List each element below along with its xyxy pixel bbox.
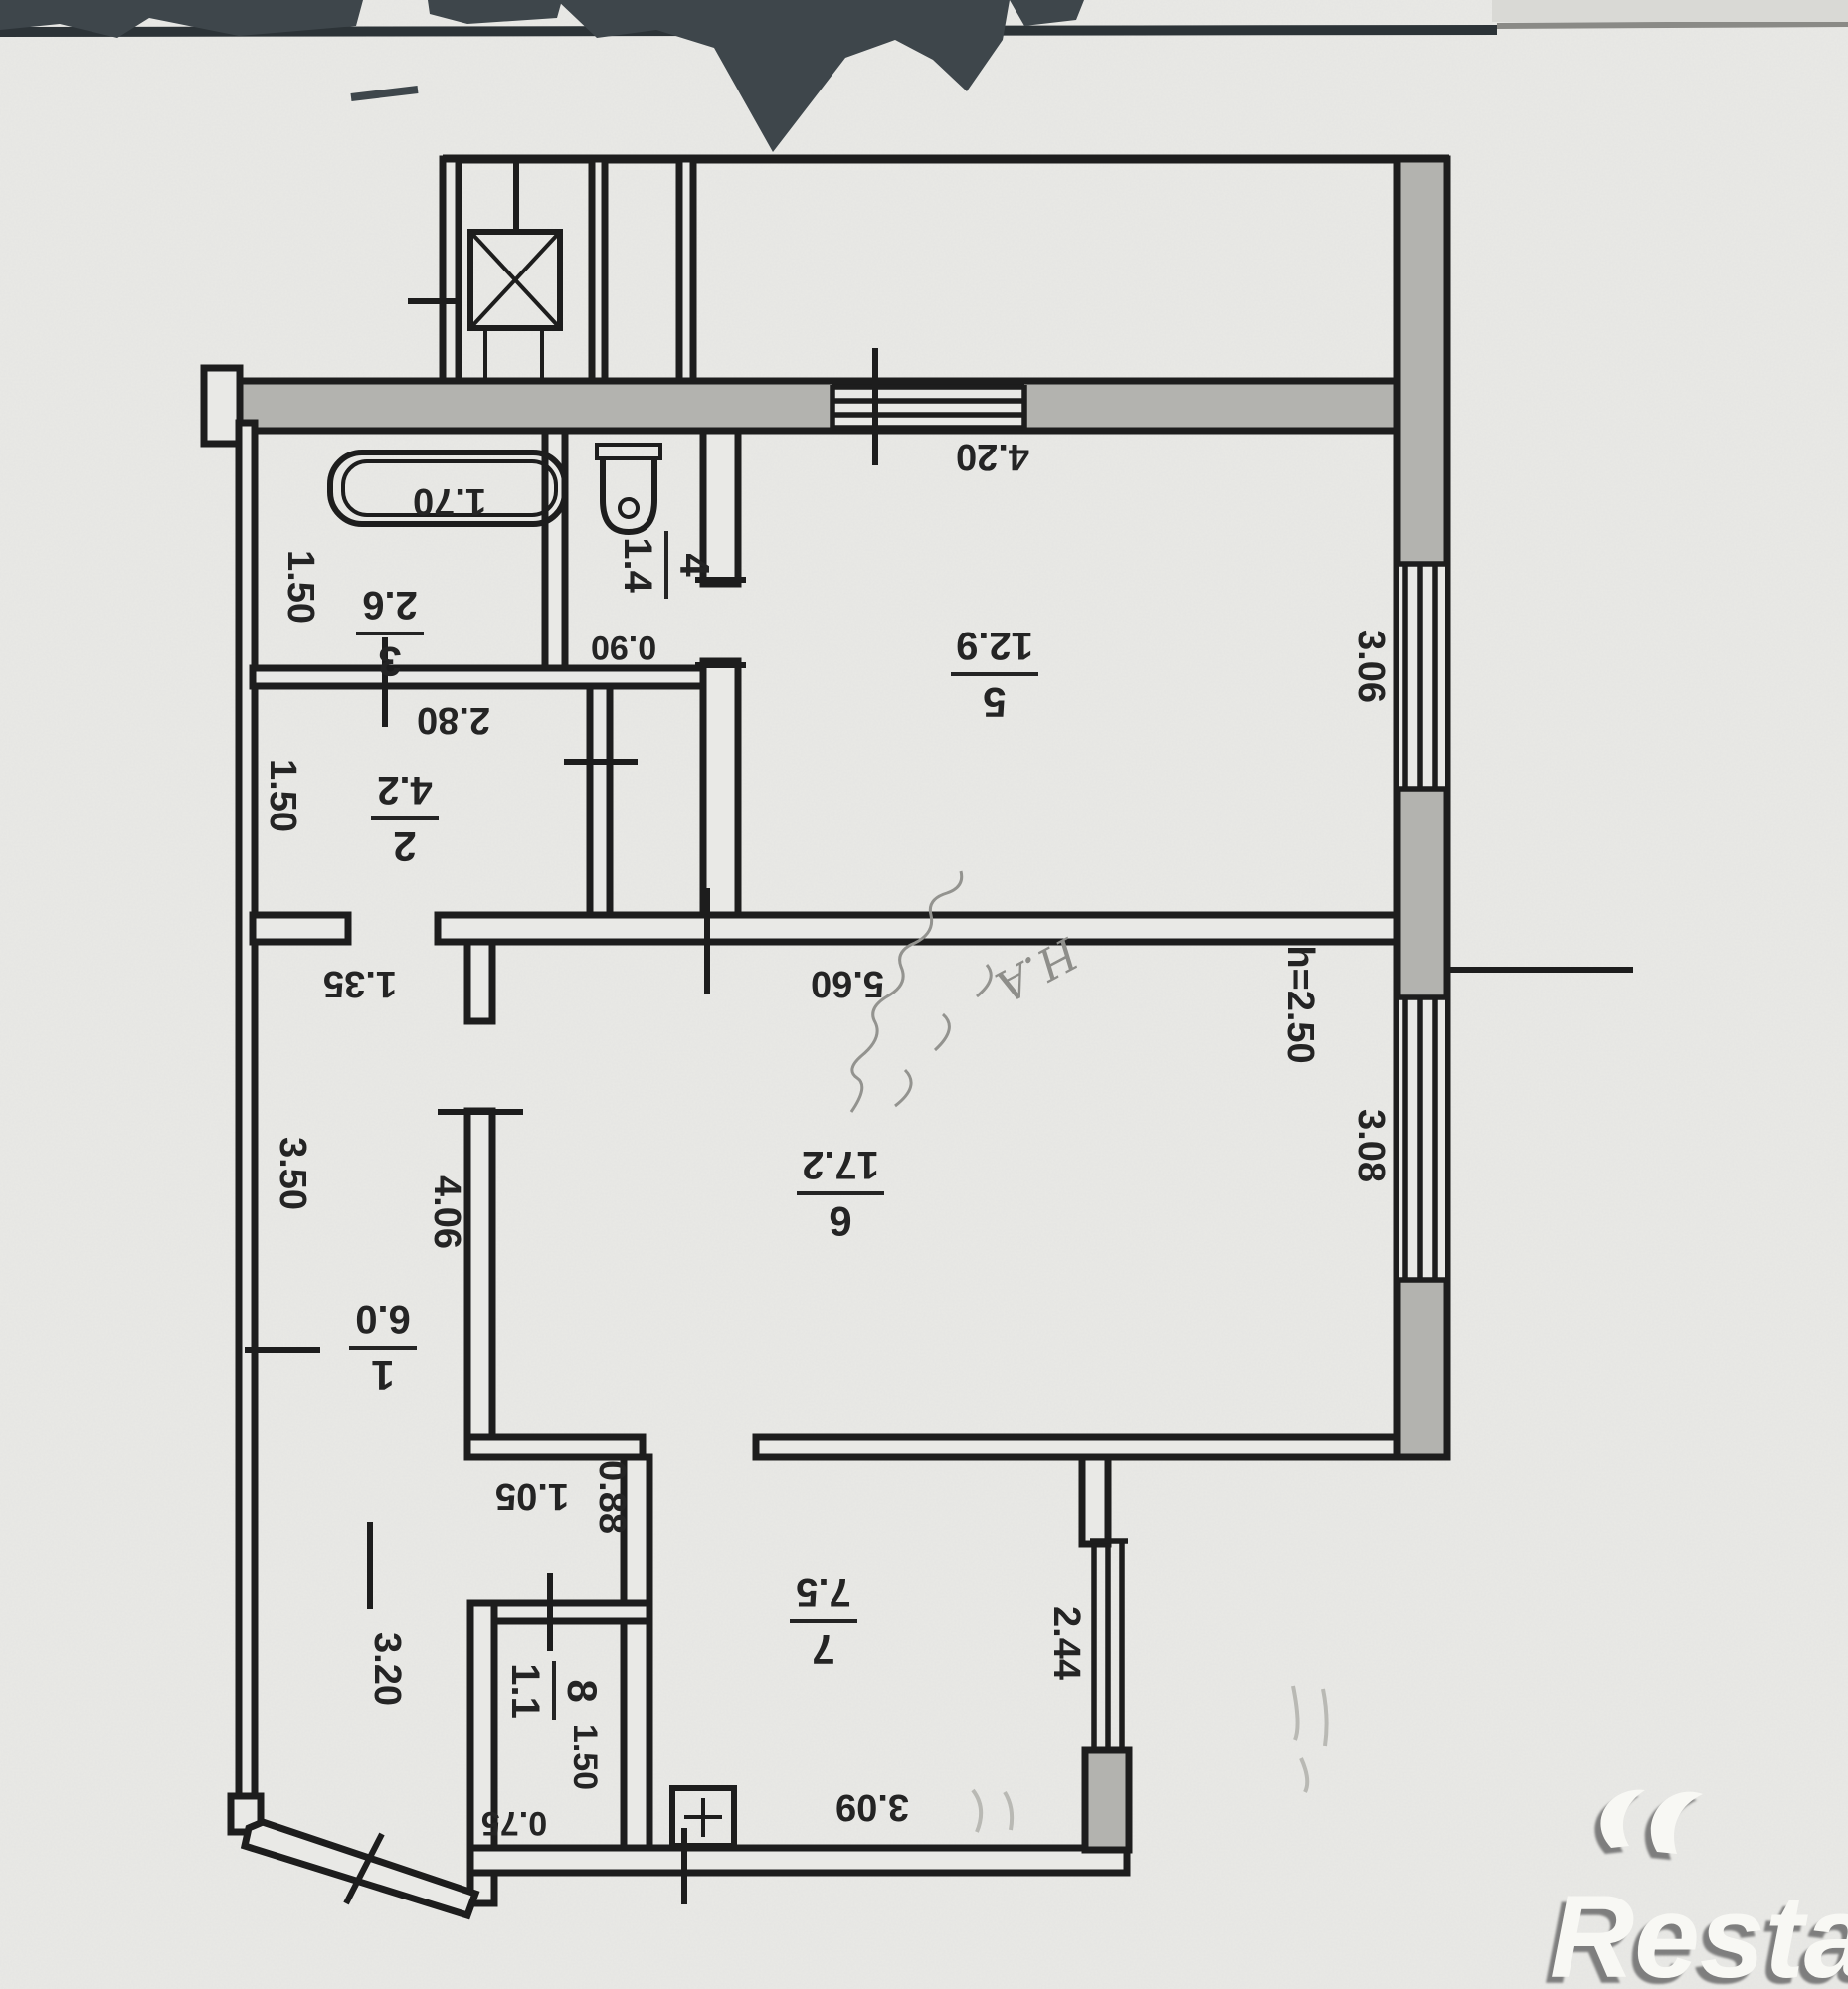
svg-text:12.9: 12.9 bbox=[956, 624, 1033, 667]
dim-kitchen-depth: 3.06 bbox=[1350, 630, 1391, 703]
svg-text:2: 2 bbox=[393, 823, 416, 870]
dim-room8-width: 0.75 bbox=[481, 1804, 547, 1842]
room7-window bbox=[1090, 1541, 1128, 1750]
dim-corridor-depth: 0.88 bbox=[591, 1460, 633, 1534]
floor-plan-scan: 1 6.0 2 4.2 3 2.6 4 1.4 5 12.9 6 17.2 7 … bbox=[0, 0, 1848, 1989]
dim-bath-width: 1.50 bbox=[279, 550, 321, 624]
svg-text:17.2: 17.2 bbox=[802, 1143, 879, 1186]
dim-room8-depth: 1.50 bbox=[566, 1724, 604, 1790]
dim-corridor-width: 1.05 bbox=[495, 1475, 569, 1517]
dim-bath-block-width: 2.80 bbox=[417, 699, 490, 741]
kitchen-window bbox=[832, 385, 1024, 428]
dim-room6-width: 5.60 bbox=[811, 963, 884, 1004]
strip-divider-1 bbox=[592, 159, 605, 383]
dim-room7-right-depth: 2.44 bbox=[1045, 1606, 1087, 1680]
dim-hall-top-width: 1.35 bbox=[323, 963, 397, 1004]
dim-room6-left-depth: 4.06 bbox=[426, 1175, 467, 1249]
svg-text:7.5: 7.5 bbox=[796, 1570, 851, 1614]
svg-text:1.1: 1.1 bbox=[503, 1663, 547, 1718]
svg-text:7: 7 bbox=[812, 1626, 834, 1673]
dim-room7-width: 3.09 bbox=[835, 1786, 909, 1828]
room5-window bbox=[1399, 564, 1445, 789]
dim-hall-depth: 3.50 bbox=[272, 1137, 313, 1210]
svg-text:5: 5 bbox=[983, 679, 1006, 726]
strip-divider-2 bbox=[679, 159, 693, 383]
dim-wc-width: 0.90 bbox=[591, 629, 656, 666]
dim-bathtub-length: 1.70 bbox=[413, 480, 486, 522]
svg-text:8: 8 bbox=[559, 1679, 606, 1702]
svg-text:1.4: 1.4 bbox=[616, 537, 659, 593]
svg-text:4.2: 4.2 bbox=[377, 768, 433, 812]
svg-text:1: 1 bbox=[371, 1353, 394, 1399]
top-wall-left-cap bbox=[204, 368, 240, 444]
floor-plan-drawing: 1 6.0 2 4.2 3 2.6 4 1.4 5 12.9 6 17.2 7 … bbox=[0, 0, 1848, 1989]
watermark-text: Restate bbox=[1550, 1872, 1848, 1989]
dim-kitchen-width: 4.20 bbox=[956, 436, 1029, 477]
svg-text:4: 4 bbox=[671, 553, 718, 577]
dim-ceiling-height: h=2.50 bbox=[1279, 945, 1321, 1063]
svg-text:3: 3 bbox=[378, 638, 401, 685]
dim-room6-depth: 3.08 bbox=[1350, 1109, 1391, 1182]
top-outer-wall bbox=[212, 381, 1447, 431]
svg-text:6.0: 6.0 bbox=[355, 1297, 411, 1341]
svg-text:6: 6 bbox=[829, 1198, 851, 1245]
room6-window bbox=[1399, 997, 1445, 1280]
dim-diagonal-length: 3.20 bbox=[366, 1632, 408, 1706]
strip-left-wall bbox=[443, 159, 459, 383]
dim-room2-width: 1.50 bbox=[262, 759, 303, 832]
svg-text:2.6: 2.6 bbox=[362, 583, 418, 627]
paper-grain bbox=[0, 0, 1848, 1989]
